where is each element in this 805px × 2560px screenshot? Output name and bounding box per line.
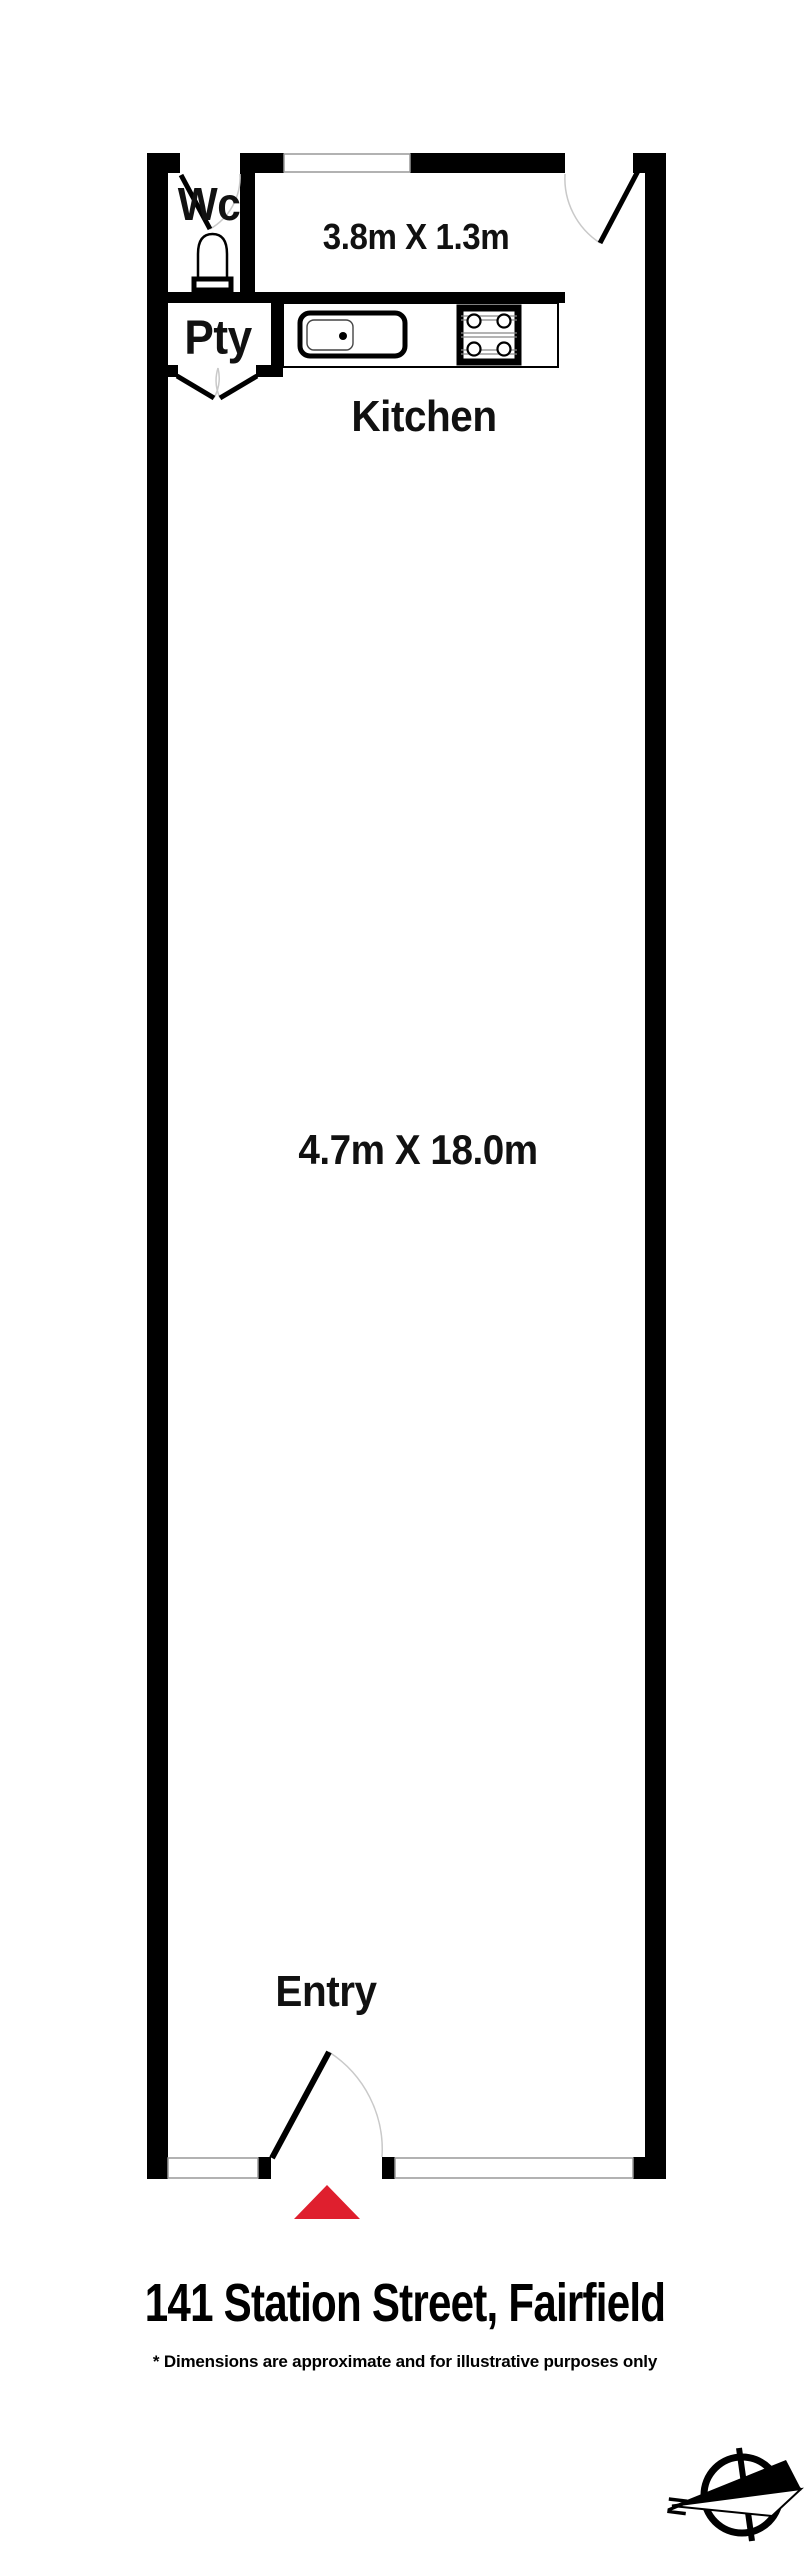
window-top [284, 154, 410, 172]
top-right-door-leaf [600, 171, 638, 243]
window-bottom-right [395, 2158, 633, 2178]
entry-marker-triangle [294, 2185, 360, 2219]
floorplan-page: Wc 3.8m X 1.3m Kitchen Pty 4.7m X 18.0m … [0, 0, 805, 2560]
floor-plan-drawing [0, 0, 805, 2560]
compass-north-label: N [660, 2489, 693, 2522]
pty-door-leaf-right [220, 376, 257, 398]
toilet-cistern [194, 279, 231, 290]
pty-door-leaf-left [177, 376, 214, 398]
wall-bottom-jamb-right [382, 2157, 395, 2179]
top-right-door-arc [565, 174, 600, 243]
address-title: 141 Station Street, Fairfield [145, 2272, 665, 2334]
pantry-room-label: Pty [184, 311, 251, 366]
wall-wc-partition [240, 173, 255, 292]
entry-door-arc [329, 2052, 382, 2157]
wall-left [147, 153, 168, 2179]
toilet-icon [194, 234, 231, 290]
entry-door-leaf [272, 2052, 329, 2158]
wall-pty-jamb-right [256, 365, 283, 377]
sink-tap-icon [339, 332, 347, 340]
entry-label: Entry [275, 1967, 376, 2017]
disclaimer-text: * Dimensions are approximate and for ill… [153, 2352, 657, 2372]
wall-bottom-corner-right [633, 2157, 666, 2179]
kitchen-bench [283, 303, 558, 367]
wall-top-corner-right [633, 153, 666, 173]
window-bottom-left [168, 2158, 258, 2178]
wall-pty-jamb-left [166, 365, 178, 377]
main-room-dimensions-label: 4.7m X 18.0m [298, 1126, 537, 1174]
wall-top-corner-left [147, 153, 180, 173]
kitchen-dimensions-label: 3.8m X 1.3m [323, 216, 509, 258]
wall-top-segment-2 [410, 153, 565, 173]
wall-divider-horizontal [168, 292, 565, 303]
toilet-bowl [198, 234, 227, 281]
kitchen-room-label: Kitchen [351, 392, 496, 442]
wc-room-label: Wc [178, 177, 241, 231]
wall-bottom-jamb-left [258, 2157, 271, 2179]
wall-top-segment-1 [240, 153, 284, 173]
wall-right [645, 153, 666, 2179]
